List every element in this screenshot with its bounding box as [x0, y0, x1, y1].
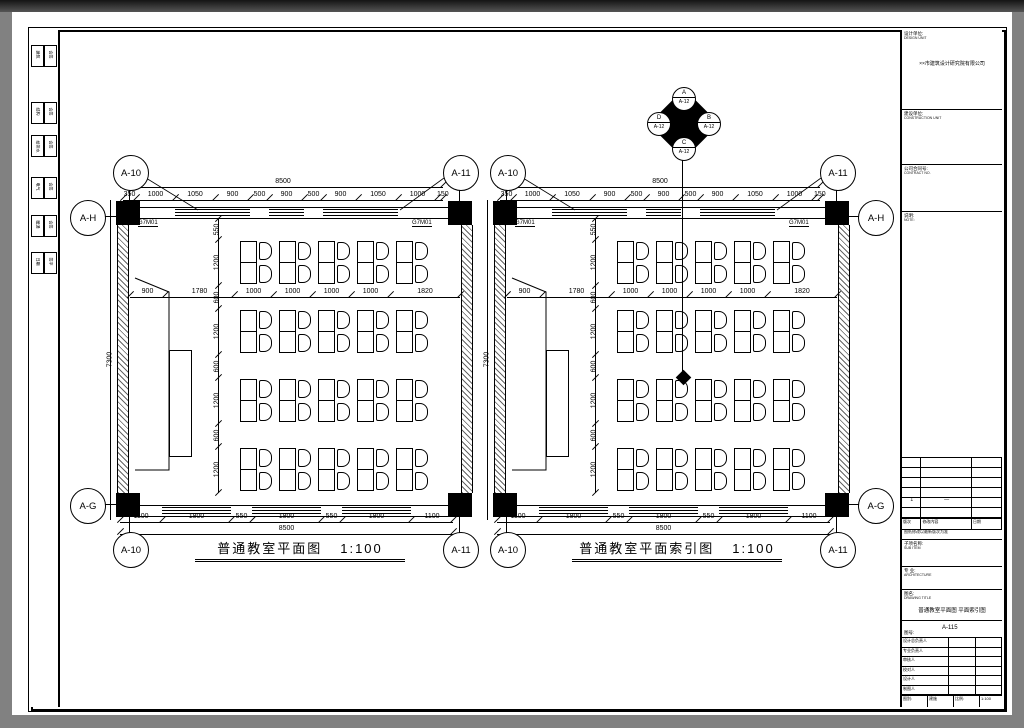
chair — [753, 449, 766, 467]
desk — [617, 241, 634, 263]
dim-bottom-label: 1800 — [629, 513, 698, 521]
desk — [617, 262, 634, 284]
desk-cluster — [396, 310, 430, 354]
chair — [415, 265, 428, 283]
desk — [240, 469, 257, 491]
tb-sign-row: 校对人 — [902, 667, 1002, 677]
tb-revision-cell — [921, 458, 971, 467]
grid-line — [104, 504, 131, 505]
index-node-ref: A-12 — [673, 99, 695, 106]
tb-sign-cell — [976, 657, 1002, 666]
chair — [753, 242, 766, 260]
plan-title-text: 普通教室平面图 — [217, 541, 322, 556]
chair — [415, 472, 428, 490]
chair — [415, 334, 428, 352]
dim-bottom-label: 1800 — [539, 513, 608, 521]
dim-top-total-line — [123, 187, 443, 188]
desk — [279, 241, 296, 263]
desk — [773, 469, 790, 491]
desk — [695, 331, 712, 353]
tb-revision-cell — [921, 488, 971, 497]
dim-bottom-line — [120, 522, 453, 523]
chair — [753, 403, 766, 421]
chair — [714, 311, 727, 329]
chair — [714, 265, 727, 283]
dim-mid-label: 1820 — [390, 288, 460, 296]
dim-bottom-label: 550 — [698, 513, 719, 521]
chair — [298, 380, 311, 398]
dim-bottom-total-label: 8500 — [120, 525, 453, 533]
desk-cluster — [617, 379, 651, 423]
chair — [753, 472, 766, 490]
grid-bubble: A-H — [858, 200, 894, 236]
plan-title: 普通教室平面索引图1:100 — [572, 538, 782, 562]
desk-cluster — [617, 241, 651, 285]
chair — [675, 472, 688, 490]
chair — [337, 311, 350, 329]
tb-sign-cell — [949, 676, 976, 685]
tb-revision-cell — [902, 478, 921, 487]
grid-line — [129, 517, 130, 533]
tb-meta-scale-label: 比例: — [954, 696, 980, 707]
desk — [279, 310, 296, 332]
tb-sign-row: 制图人 — [902, 686, 1002, 696]
dim-bottom-total-label: 8500 — [497, 525, 830, 533]
tb-revision-cell — [902, 468, 921, 477]
dim-top-label: 900 — [700, 191, 735, 199]
tb-revision-cell — [921, 508, 971, 517]
chair — [376, 472, 389, 490]
desk — [357, 262, 374, 284]
dim-left-total-label: 7300 — [484, 346, 491, 374]
tb-dwg-title: 图名: DRAWING TITLE 普通教室平面图 平面索引图 — [902, 590, 1002, 621]
desk-cluster — [318, 241, 352, 285]
index-node-letter: A — [673, 89, 695, 98]
index-node: DA-12 — [647, 112, 671, 136]
chair — [415, 242, 428, 260]
desk — [318, 310, 335, 332]
tb-owner-sub: CONSTRUCTION UNIT — [902, 116, 1002, 120]
tb-sign-row: 设计总负责人 — [902, 638, 1002, 648]
desk-cluster — [357, 448, 391, 492]
tb-revision-cell — [972, 478, 1002, 487]
desk-cluster — [240, 310, 274, 354]
desk-cluster — [656, 379, 690, 423]
desk-cluster — [773, 379, 807, 423]
desk-cluster — [695, 448, 729, 492]
tb-contract-sub: CONTRACT NO. — [902, 171, 1002, 175]
tb-signature-rows: 设计总负责人专业负责人审核人校对人设计人制图人 — [902, 638, 1002, 696]
desk — [695, 379, 712, 401]
chair — [636, 403, 649, 421]
dim-top-label: 900 — [269, 191, 304, 199]
index-node: AA-12 — [672, 87, 696, 111]
desk — [318, 469, 335, 491]
tb-revision-cell — [902, 508, 921, 517]
dim-top-label: 900 — [646, 191, 681, 199]
tb-revision-header-cell: 修改内容 — [921, 519, 971, 529]
desk — [318, 400, 335, 422]
desk-cluster — [734, 448, 768, 492]
desk-cluster — [695, 310, 729, 354]
desk — [695, 400, 712, 422]
tb-revision-header: 版次修改内容日期 — [902, 519, 1002, 530]
tb-revision-cell — [902, 458, 921, 467]
desk — [656, 310, 673, 332]
dim-left-label: 1200 — [591, 456, 598, 484]
elevation-index-symbol: AA-12BA-12CA-12DA-12 — [648, 88, 720, 160]
dim-bottom-label: 1100 — [788, 513, 830, 521]
tb-sign-cell: 制图人 — [902, 686, 949, 695]
grid-bubble: A-11 — [443, 532, 479, 568]
plan-title-text: 普通教室平面索引图 — [579, 541, 714, 556]
dim-mid-label: 1000 — [273, 288, 312, 296]
dim-bottom-line — [497, 522, 830, 523]
tb-sign-row: 审核人 — [902, 657, 1002, 667]
desk — [357, 400, 374, 422]
lectern — [169, 350, 192, 457]
grid-bubble: A-10 — [113, 155, 149, 191]
plans-area: G7M01G7M01850035010001050900500900500900… — [0, 0, 1024, 728]
tb-sign-cell: 专业负责人 — [902, 648, 949, 657]
tb-revision-cell: 1 — [902, 498, 921, 507]
tb-revision-table: 1— — [902, 458, 1002, 519]
tb-sign-row: 设计人 — [902, 676, 1002, 686]
classroom-plan: G7M01G7M01850035010001050900500900500900… — [100, 160, 520, 592]
tb-sign-cell — [976, 667, 1002, 676]
desk-cluster — [357, 241, 391, 285]
desk — [617, 331, 634, 353]
chair — [337, 472, 350, 490]
chair — [636, 380, 649, 398]
desk — [734, 379, 751, 401]
chair — [259, 472, 272, 490]
chair — [792, 472, 805, 490]
desk-cluster — [357, 310, 391, 354]
tb-sign-cell: 校对人 — [902, 667, 949, 676]
chair — [376, 265, 389, 283]
dim-left-label: 1200 — [214, 318, 221, 346]
grid-bubble: A-10 — [490, 532, 526, 568]
tb-revision-row — [902, 458, 1002, 468]
dim-mid-label: 1000 — [234, 288, 273, 296]
desk — [656, 448, 673, 470]
chair — [714, 472, 727, 490]
dim-bottom-total-line — [120, 534, 453, 535]
dim-left-label: 1200 — [214, 387, 221, 415]
desk — [396, 331, 413, 353]
tb-revision-row — [902, 478, 1002, 488]
desk — [318, 241, 335, 263]
tb-revision-header-cell: 版次 — [902, 519, 921, 529]
desk — [357, 448, 374, 470]
desk-cluster — [240, 379, 274, 423]
desk-cluster — [240, 241, 274, 285]
tb-revision-note: 图纸修改以最新版次为准 — [902, 530, 1002, 540]
desk — [279, 469, 296, 491]
desk — [773, 310, 790, 332]
dim-left-label: 1200 — [214, 249, 221, 277]
desk-cluster — [617, 448, 651, 492]
tb-revision-cell — [921, 478, 971, 487]
desk — [695, 241, 712, 263]
desk-cluster — [279, 448, 313, 492]
tb-revision-row — [902, 488, 1002, 498]
dim-top-label: 1000 — [398, 191, 437, 199]
dim-mid-line — [507, 297, 837, 298]
chair — [792, 449, 805, 467]
dim-mid-label: 1000 — [650, 288, 689, 296]
dim-top-label: 1050 — [552, 191, 592, 199]
chair — [259, 380, 272, 398]
desk — [656, 379, 673, 401]
chair — [714, 449, 727, 467]
chair — [376, 311, 389, 329]
desk — [279, 331, 296, 353]
desk — [318, 262, 335, 284]
desk — [240, 241, 257, 263]
desk-cluster — [396, 448, 430, 492]
grid-bubble: A-H — [70, 200, 106, 236]
desk — [279, 262, 296, 284]
chair — [753, 311, 766, 329]
chair — [636, 449, 649, 467]
dim-top-label: 1050 — [735, 191, 775, 199]
dim-top-label: 500 — [627, 191, 646, 199]
desk-cluster — [617, 310, 651, 354]
desk — [396, 241, 413, 263]
desk-cluster — [773, 241, 807, 285]
desk-cluster — [240, 448, 274, 492]
desk — [240, 262, 257, 284]
chair — [636, 472, 649, 490]
tb-revision-note-text: 图纸修改以最新版次为准 — [902, 530, 1002, 534]
desk-cluster — [656, 241, 690, 285]
desk — [396, 310, 413, 332]
plan-title: 普通教室平面图1:100 — [195, 538, 405, 562]
desk-cluster — [734, 310, 768, 354]
index-leader-line — [682, 160, 683, 373]
desk-cluster — [695, 241, 729, 285]
chair — [636, 334, 649, 352]
grid-bubble: A-G — [858, 488, 894, 524]
dim-top-label: 900 — [323, 191, 358, 199]
desk — [773, 379, 790, 401]
tb-revision-header-cell: 日期 — [972, 519, 1002, 529]
tb-revision-row — [902, 468, 1002, 478]
plan-scale: 1:100 — [340, 541, 383, 556]
desk — [357, 331, 374, 353]
desk — [695, 262, 712, 284]
desk — [396, 448, 413, 470]
dim-bottom-label: 1100 — [120, 513, 162, 521]
chair — [259, 311, 272, 329]
grid-line — [104, 216, 131, 217]
tb-sign-cell — [976, 676, 1002, 685]
tb-revision-cell — [902, 488, 921, 497]
chair — [714, 334, 727, 352]
dim-mid-label: 1000 — [611, 288, 650, 296]
tb-revision-cell — [921, 468, 971, 477]
dim-mid-label: 900 — [507, 288, 542, 296]
dim-top-label: 1000 — [136, 191, 175, 199]
desk — [734, 469, 751, 491]
dim-top-total-line — [500, 187, 820, 188]
dim-mid-label: 1780 — [542, 288, 611, 296]
title-block: 设计单位: DESIGN UNIT ××市建筑设计研究院有限公司 建设单位: C… — [900, 30, 1002, 707]
dim-mid-label: 1780 — [165, 288, 234, 296]
desk-cluster — [279, 310, 313, 354]
desk — [773, 241, 790, 263]
dim-mid-label: 1000 — [351, 288, 390, 296]
desk — [656, 241, 673, 263]
tb-major: 专 业: ARCHITECTURE — [902, 567, 1002, 590]
tb-revision-row: 1— — [902, 498, 1002, 508]
dim-bottom-label: 550 — [231, 513, 252, 521]
desk — [695, 469, 712, 491]
dim-bottom-label: 1800 — [719, 513, 788, 521]
chair — [675, 449, 688, 467]
chair — [792, 311, 805, 329]
desk-cluster — [734, 379, 768, 423]
tb-revision-cell: — — [921, 498, 971, 507]
index-node: CA-12 — [672, 137, 696, 161]
dim-bottom-label: 1100 — [411, 513, 453, 521]
chair — [415, 311, 428, 329]
tb-sign-cell — [976, 638, 1002, 647]
index-node-ref: A-12 — [673, 149, 695, 156]
dim-top-label: 500 — [304, 191, 323, 199]
desk — [773, 448, 790, 470]
tb-subitem: 子项名称: SUB ITEM — [902, 540, 1002, 567]
desk — [656, 331, 673, 353]
desk — [318, 331, 335, 353]
desk — [240, 379, 257, 401]
desk — [617, 310, 634, 332]
chair — [337, 449, 350, 467]
dim-top-label: 500 — [681, 191, 700, 199]
desk — [318, 448, 335, 470]
desk-cluster — [279, 241, 313, 285]
chair — [337, 242, 350, 260]
chair — [259, 242, 272, 260]
tb-subitem-sub: SUB ITEM — [902, 546, 1002, 550]
chair — [298, 311, 311, 329]
dim-top-label: 900 — [592, 191, 627, 199]
dim-top-label: 1050 — [358, 191, 398, 199]
tb-revision-cell — [972, 458, 1002, 467]
chair — [792, 242, 805, 260]
tb-sign-cell — [949, 667, 976, 676]
desk-cluster — [357, 379, 391, 423]
desk-cluster — [318, 379, 352, 423]
desk-cluster — [734, 241, 768, 285]
tb-revision-row — [902, 508, 1002, 518]
desk — [617, 400, 634, 422]
tb-contract: 公司合同号: CONTRACT NO. — [902, 165, 1002, 212]
dim-left-label: 1200 — [591, 249, 598, 277]
tb-revision-header-row: 版次修改内容日期 — [902, 519, 1002, 529]
tb-sign-cell: 审核人 — [902, 657, 949, 666]
desk — [695, 310, 712, 332]
index-node-letter: D — [648, 114, 670, 123]
dim-left-total-label: 7300 — [107, 346, 114, 374]
desk — [279, 400, 296, 422]
desk — [734, 241, 751, 263]
desk-cluster — [318, 448, 352, 492]
chair — [376, 334, 389, 352]
desk — [279, 448, 296, 470]
desk — [773, 400, 790, 422]
tb-design-unit: 设计单位: DESIGN UNIT ××市建筑设计研究院有限公司 — [902, 30, 1002, 110]
index-node: BA-12 — [697, 112, 721, 136]
chair — [714, 380, 727, 398]
chair — [298, 334, 311, 352]
chair — [792, 403, 805, 421]
chair — [298, 449, 311, 467]
dim-mid-label: 1000 — [728, 288, 767, 296]
tb-meta-type-label: 图别: — [902, 696, 928, 707]
chair — [792, 334, 805, 352]
grid-line — [833, 504, 859, 505]
desk — [617, 379, 634, 401]
tb-major-sub: ARCHITECTURE — [902, 573, 1002, 577]
desk — [357, 379, 374, 401]
tb-sign-cell — [976, 686, 1002, 695]
chair — [415, 380, 428, 398]
chair — [792, 265, 805, 283]
dim-top-label: 1000 — [775, 191, 814, 199]
desk-cluster — [773, 448, 807, 492]
dim-bottom-label: 1800 — [252, 513, 321, 521]
desk-cluster — [695, 379, 729, 423]
tb-design-unit-sub: DESIGN UNIT — [902, 36, 1002, 40]
chair — [376, 449, 389, 467]
dim-left-label: 1200 — [591, 318, 598, 346]
dim-top-label: 500 — [250, 191, 269, 199]
tb-dwg-title-sub: DRAWING TITLE — [902, 596, 1002, 600]
desk — [734, 310, 751, 332]
tb-meta: 图别: 建施 比例: 1:100 日期: 审定号: — [902, 696, 1002, 707]
dim-top-label: 900 — [215, 191, 250, 199]
index-node-letter: B — [698, 114, 720, 123]
desk — [656, 262, 673, 284]
tb-revision-cell — [972, 488, 1002, 497]
desk — [734, 331, 751, 353]
tb-dwg-no: 图号: A-115 DWG NO. — [902, 621, 1002, 638]
desk — [734, 448, 751, 470]
desk — [396, 262, 413, 284]
desk — [396, 400, 413, 422]
grid-bubble: A-10 — [490, 155, 526, 191]
grid-bubble: A-10 — [113, 532, 149, 568]
chair — [337, 265, 350, 283]
desk — [396, 469, 413, 491]
grid-bubble: A-G — [70, 488, 106, 524]
index-node-ref: A-12 — [648, 124, 670, 131]
chair — [753, 265, 766, 283]
chair — [753, 334, 766, 352]
chair — [298, 472, 311, 490]
desk — [734, 262, 751, 284]
chair — [259, 403, 272, 421]
tb-sign-cell: 设计总负责人 — [902, 638, 949, 647]
tb-sign-cell — [949, 686, 976, 695]
chair — [337, 380, 350, 398]
dim-top-label: 1050 — [175, 191, 215, 199]
tb-revision-cell — [972, 468, 1002, 477]
desk — [656, 469, 673, 491]
